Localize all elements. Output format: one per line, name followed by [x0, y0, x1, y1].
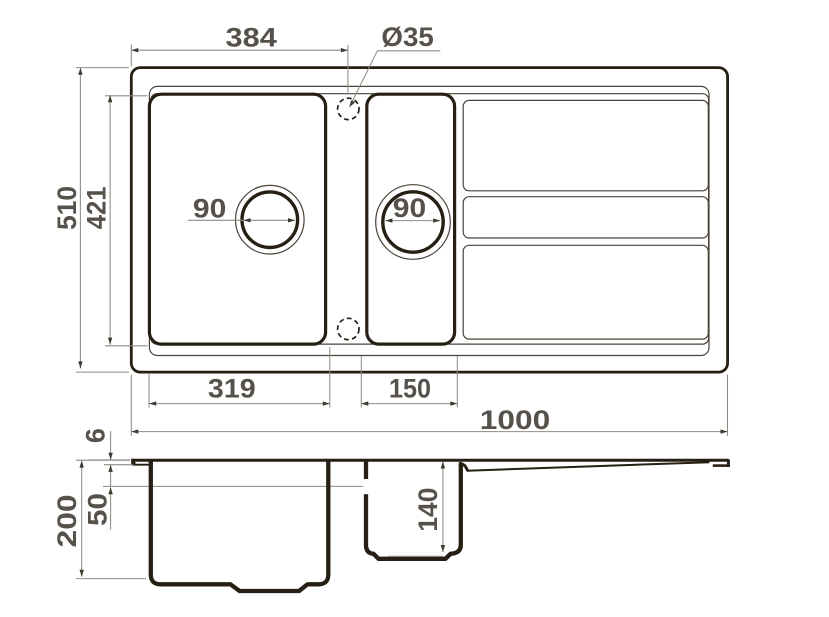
svg-text:319: 319 — [208, 373, 256, 403]
svg-text:150: 150 — [389, 373, 431, 403]
svg-text:140: 140 — [413, 488, 443, 532]
svg-text:90: 90 — [393, 193, 426, 223]
svg-text:1000: 1000 — [480, 405, 550, 435]
svg-text:510: 510 — [52, 186, 82, 230]
svg-text:50: 50 — [82, 493, 112, 526]
svg-text:200: 200 — [52, 494, 82, 547]
svg-text:6: 6 — [81, 428, 111, 443]
svg-text:90: 90 — [193, 194, 226, 224]
svg-text:421: 421 — [82, 187, 112, 230]
svg-text:384: 384 — [226, 23, 277, 53]
svg-text:Ø35: Ø35 — [381, 22, 433, 52]
